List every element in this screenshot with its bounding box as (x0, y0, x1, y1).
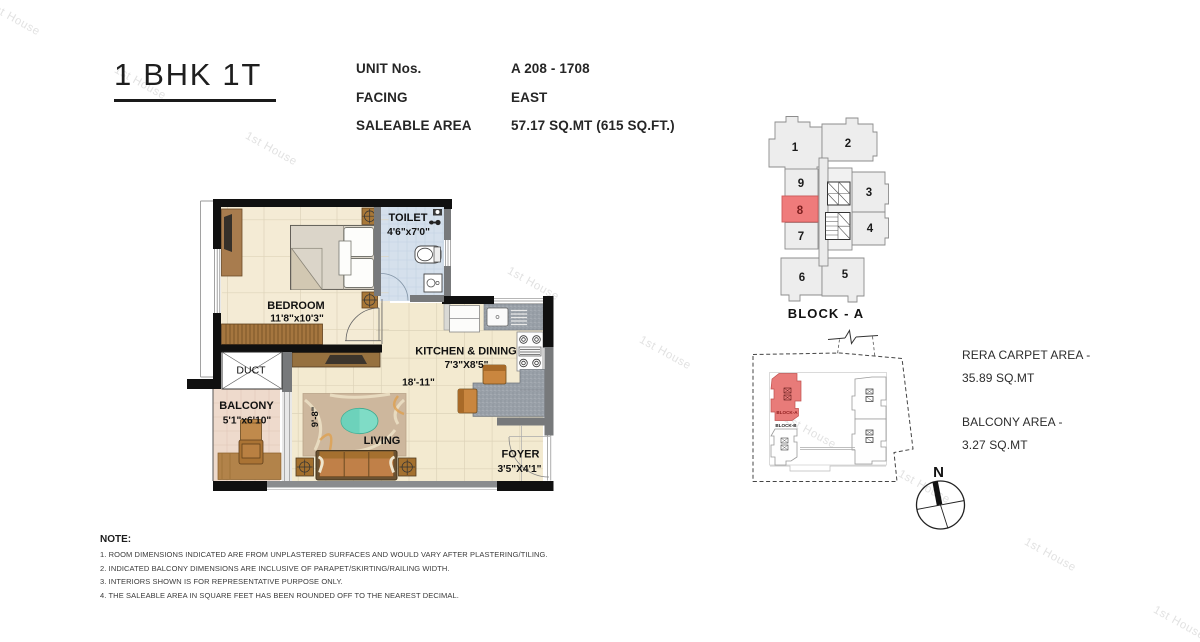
svg-text:9: 9 (798, 178, 804, 190)
svg-text:KITCHEN & DINING: KITCHEN & DINING (415, 346, 516, 358)
svg-text:18'-11": 18'-11" (402, 378, 435, 389)
svg-text:8: 8 (797, 205, 804, 217)
svg-text:5'1"x6'10": 5'1"x6'10" (223, 416, 272, 427)
svg-text:6: 6 (799, 272, 805, 284)
svg-text:LIVING: LIVING (364, 435, 401, 447)
svg-text:4: 4 (867, 223, 874, 235)
svg-text:3'5"X4'1": 3'5"X4'1" (498, 464, 542, 475)
svg-text:4'6"x7'0": 4'6"x7'0" (387, 227, 430, 238)
svg-text:11'8"x10'3": 11'8"x10'3" (270, 314, 324, 325)
svg-text:5: 5 (842, 269, 849, 281)
svg-text:2: 2 (845, 138, 851, 150)
svg-text:BEDROOM: BEDROOM (267, 300, 324, 312)
svg-text:BALCONY: BALCONY (219, 400, 274, 412)
svg-text:9'-8": 9'-8" (310, 407, 321, 428)
svg-text:N: N (933, 464, 944, 481)
svg-text:7: 7 (798, 231, 804, 243)
svg-text:DUCT: DUCT (236, 365, 266, 377)
svg-text:BLOCK - A: BLOCK - A (788, 306, 865, 321)
svg-text:FOYER: FOYER (502, 449, 540, 461)
svg-text:7'3"X8'5": 7'3"X8'5" (445, 360, 489, 371)
svg-text:1: 1 (792, 142, 799, 154)
svg-text:BLOCK-A: BLOCK-A (776, 410, 798, 415)
svg-text:TOILET: TOILET (389, 212, 428, 224)
svg-text:BLOCK-B: BLOCK-B (775, 423, 797, 428)
svg-text:3: 3 (866, 187, 872, 199)
